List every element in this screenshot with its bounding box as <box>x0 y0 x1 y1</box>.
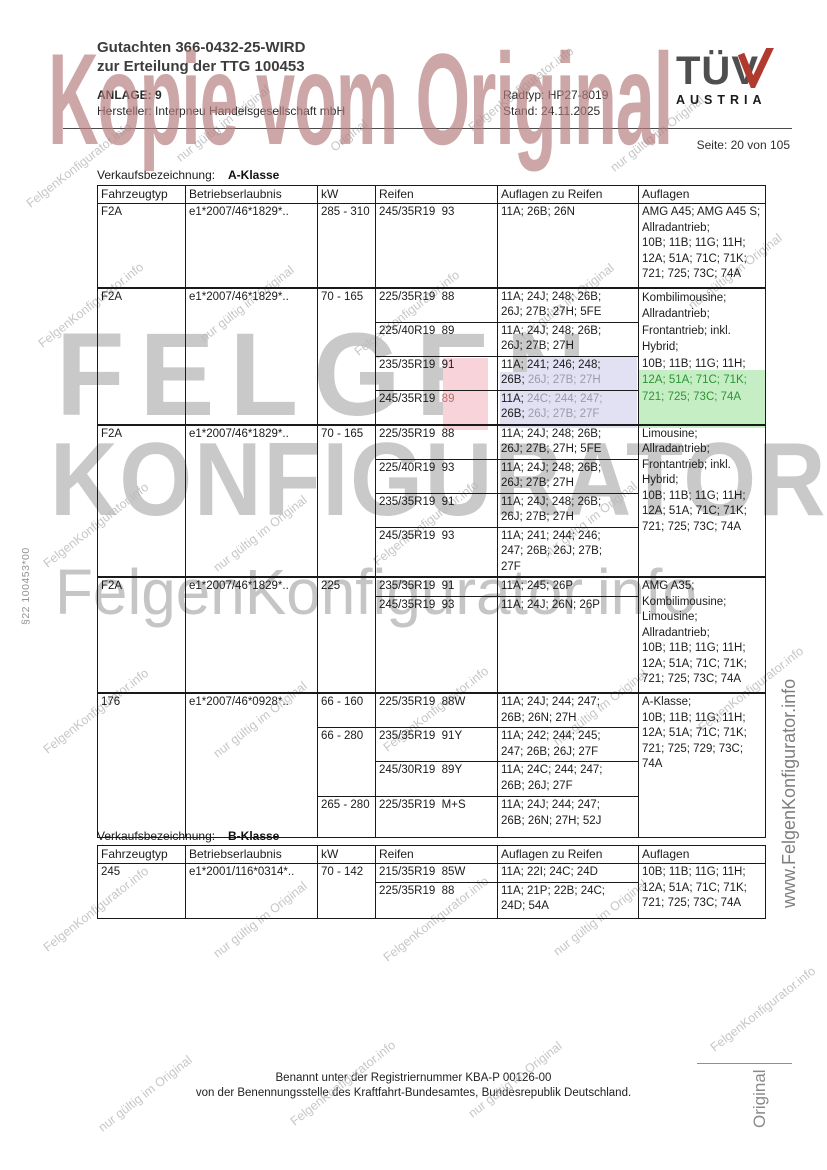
cell-fahrzeugtyp: F2A <box>98 577 186 693</box>
cell-fahrzeugtyp: 245 <box>98 864 186 919</box>
col-header-auflagen-zu-reifen: Auflagen zu Reifen <box>498 186 639 204</box>
cell-auflagen-zu-reifen: 11A; 245; 26P <box>498 577 639 596</box>
gutachten-title-line2: zur Erteilung der TTG 100453 <box>97 57 305 76</box>
header-divider <box>63 128 792 129</box>
anlage-label: ANLAGE: 9 <box>97 88 162 103</box>
cell-auflagen-zu-reifen: 11A; 24J; 248; 26B; 26J; 27B; 27H <box>498 493 639 527</box>
col-header-auflagen: Auflagen <box>639 186 766 204</box>
footer-line1: Benannt unter der Registriernummer KBA-P… <box>0 1072 827 1084</box>
cell-auflagen-zu-reifen: 11A; 24C; 244; 247; 26B; 26J; 27B; 27F <box>498 390 639 425</box>
document-page: FELGEN KONFIGURATOR FelgenKonfigurator.i… <box>0 0 827 1170</box>
cell-kw: 285 - 310 <box>318 204 376 288</box>
cell-fahrzeugtyp: F2A <box>98 288 186 425</box>
cell-auflagen-zu-reifen: 11A; 241; 246; 248; 26B; 26J; 27B; 27H <box>498 356 639 390</box>
col-header-betriebserlaubnis: Betriebserlaubnis <box>186 846 318 864</box>
cell-fahrzeugtyp: 176 <box>98 693 186 838</box>
col-header-auflagen: Auflagen <box>639 846 766 864</box>
side-www-felgenkonfigurator: www.FelgenKonfigurator.info <box>779 679 800 908</box>
cell-reifen: 225/35R19 M+S <box>376 797 498 838</box>
cell-auflagen-zu-reifen: 11A; 24J; 248; 26B; 26J; 27B; 27H; 5FE <box>498 425 639 460</box>
cell-kw: 70 - 142 <box>318 864 376 919</box>
cell-betriebserlaubnis: e1*2007/46*1829*.. <box>186 204 318 288</box>
cell-auflagen: Limousine; Allradantrieb; Frontantrieb; … <box>639 425 766 578</box>
cell-auflagen: 10B; 11B; 11G; 11H; 12A; 51A; 71C; 71K; … <box>639 864 766 919</box>
cell-reifen: 225/40R19 93 <box>376 459 498 493</box>
cell-kw: 66 - 160 <box>318 693 376 728</box>
cell-reifen: 225/35R19 88 <box>376 882 498 918</box>
cell-reifen: 235/35R19 91 <box>376 493 498 527</box>
watermark-text: nur gültig im Original <box>174 83 273 165</box>
cell-reifen: 245/35R19 93 <box>376 527 498 577</box>
radtyp-label: Radtyp: HP27-8019 <box>503 88 608 103</box>
cell-fahrzeugtyp: F2A <box>98 204 186 288</box>
load-index-red: 89 <box>442 393 455 405</box>
col-header-auflagen-zu-reifen: Auflagen zu Reifen <box>498 846 639 864</box>
cell-betriebserlaubnis: e1*2007/46*1829*.. <box>186 425 318 578</box>
cell-betriebserlaubnis: e1*2007/46*1829*.. <box>186 288 318 425</box>
cell-reifen: 245/35R19 93 <box>376 596 498 693</box>
col-header-betriebserlaubnis: Betriebserlaubnis <box>186 186 318 204</box>
cell-auflagen-zu-reifen: 11A; 24J; 244; 247; 26B; 26N; 27H; 52J <box>498 797 639 838</box>
cell-auflagen-zu-reifen: 11A; 24J; 244; 247; 26B; 26N; 27H <box>498 693 639 728</box>
cell-reifen: 235/35R19 91 <box>376 577 498 596</box>
page-number: Seite: 20 von 105 <box>600 138 790 152</box>
cell-auflagen-zu-reifen: 11A; 24J; 248; 26B; 26J; 27B; 27H; 5FE <box>498 288 639 323</box>
cell-auflagen-zu-reifen: 11A; 24C; 244; 247; 26B; 26J; 27F <box>498 762 639 797</box>
auflagen-black: Kombilimousine; Allradantrieb; Frontantr… <box>642 292 746 370</box>
cell-reifen: 225/35R19 88 <box>376 425 498 460</box>
cell-auflagen: A-Klasse; 10B; 11B; 11G; 11H; 12A; 51A; … <box>639 693 766 838</box>
stand-label: Stand: 24.11.2025 <box>503 104 600 119</box>
cell-reifen: 245/30R19 89Y <box>376 762 498 797</box>
cell-reifen: 225/40R19 89 <box>376 322 498 356</box>
cell-auflagen: AMG A35; Kombilimousine; Limousine; Allr… <box>639 577 766 693</box>
col-header-kw: kW <box>318 186 376 204</box>
col-header-reifen: Reifen <box>376 186 498 204</box>
austria-logo-text: AUSTRIA <box>676 93 776 107</box>
cell-fahrzeugtyp: F2A <box>98 425 186 578</box>
cell-auflagen-zu-reifen: 11A; 242; 244; 245; 247; 26B; 26J; 27F <box>498 728 639 762</box>
cell-betriebserlaubnis: e1*2001/116*0314*.. <box>186 864 318 919</box>
table-a-klasse: Fahrzeugtyp Betriebserlaubnis kW Reifen … <box>97 185 766 838</box>
col-header-reifen: Reifen <box>376 846 498 864</box>
cell-betriebserlaubnis: e1*2007/46*0928*.. <box>186 693 318 838</box>
footer-right-line <box>697 1063 792 1064</box>
watermark-text: FelgenKonfigurator.info <box>708 964 818 1055</box>
cell-auflagen-zu-reifen: 11A; 24J; 248; 26B; 26J; 27B; 27H <box>498 322 639 356</box>
col-header-fahrzeugtyp: Fahrzeugtyp <box>98 186 186 204</box>
watermark-text: Original <box>328 117 371 155</box>
tuv-austria-logo: TÜV AUSTRIA <box>676 50 776 107</box>
cell-kw: 70 - 165 <box>318 425 376 578</box>
side-paragraph-number: §22 100453*00 <box>20 547 32 625</box>
cell-auflagen: Kombilimousine; Allradantrieb; Frontantr… <box>639 288 766 425</box>
cell-reifen: 245/35R19 89 <box>376 390 498 425</box>
verkaufsbezeichnung-value-a: A-Klasse <box>228 168 279 182</box>
cell-kw: 66 - 280 <box>318 728 376 797</box>
verkaufsbezeichnung-label-b: Verkaufsbezeichnung: <box>97 829 215 843</box>
cell-auflagen-zu-reifen: 11A; 26B; 26N <box>498 204 639 288</box>
cell-auflagen-zu-reifen: 11A; 24J; 26N; 26P <box>498 596 639 693</box>
auflagen-green: 12A; 51A; 71C; 71K; 721; 725; 73C; 74A <box>642 372 762 405</box>
col-header-kw: kW <box>318 846 376 864</box>
cell-kw: 265 - 280 <box>318 797 376 838</box>
col-header-fahrzeugtyp: Fahrzeugtyp <box>98 846 186 864</box>
verkaufsbezeichnung-value-b: B-Klasse <box>228 829 279 843</box>
cell-reifen: 225/35R19 88 <box>376 288 498 323</box>
cell-reifen: 245/35R19 93 <box>376 204 498 288</box>
cell-auflagen-zu-reifen: 11A; 24J; 248; 26B; 26J; 27B; 27H <box>498 459 639 493</box>
cell-reifen: 225/35R19 88W <box>376 693 498 728</box>
table-b-klasse: Fahrzeugtyp Betriebserlaubnis kW Reifen … <box>97 845 766 919</box>
cell-reifen: 215/35R19 85W <box>376 864 498 883</box>
cell-betriebserlaubnis: e1*2007/46*1829*.. <box>186 577 318 693</box>
cell-auflagen: AMG A45; AMG A45 S; Allradantrieb; 10B; … <box>639 204 766 288</box>
verkaufsbezeichnung-label-a: Verkaufsbezeichnung: <box>97 168 215 182</box>
cell-auflagen-zu-reifen: 11A; 241; 244; 246; 247; 26B; 26J; 27B; … <box>498 527 639 577</box>
cell-auflagen-zu-reifen: 11A; 21P; 22B; 24C; 24D; 54A <box>498 882 639 918</box>
cell-kw: 225 <box>318 577 376 693</box>
footer-line2: von der Benennungsstelle des Kraftfahrt-… <box>0 1087 827 1099</box>
tuv-check-icon <box>738 48 774 88</box>
hersteller-label: Hersteller: Interpneu Handelsgesellschaf… <box>97 104 345 119</box>
cell-reifen: 235/35R19 91 <box>376 356 498 390</box>
cell-auflagen-zu-reifen: 11A; 22I; 24C; 24D <box>498 864 639 883</box>
gutachten-title-line1: Gutachten 366-0432-25-WIRD <box>97 38 305 57</box>
cell-kw: 70 - 165 <box>318 288 376 425</box>
cell-reifen: 235/35R19 91Y <box>376 728 498 762</box>
